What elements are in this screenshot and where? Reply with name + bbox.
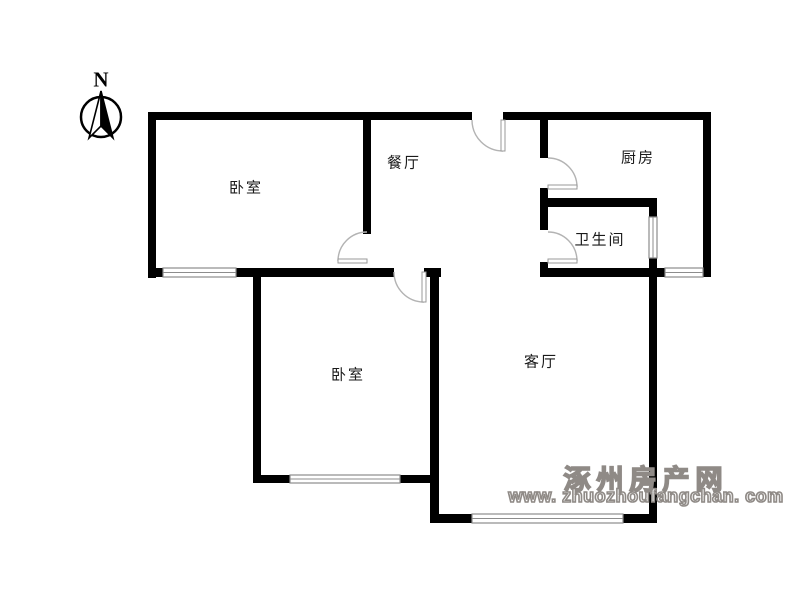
room-label-bedroom-1: 卧室 <box>229 177 263 198</box>
kitchen-door-leaf <box>548 185 577 189</box>
floorplan-canvas <box>0 0 800 600</box>
room-label-kitchen: 厨房 <box>621 147 655 168</box>
wall <box>540 112 548 158</box>
watermark-site-url: www. zhuozhoufangchan. com <box>508 486 783 507</box>
wall <box>253 475 290 483</box>
floorplan-page: N 卧室 餐厅 厨房 卫生间 卧室 客厅 涿州房产网 www. zhuozhou… <box>0 0 800 600</box>
wall <box>703 112 711 277</box>
wall <box>503 112 711 120</box>
wall <box>253 270 261 483</box>
wall <box>148 268 163 277</box>
wall <box>363 112 371 234</box>
wall <box>540 198 657 207</box>
bathroom-door-leaf <box>548 259 577 263</box>
bathroom-door-arc <box>548 232 577 261</box>
wall <box>148 112 472 120</box>
wall <box>430 270 439 523</box>
wall <box>430 514 472 523</box>
wall <box>540 188 548 230</box>
kitchen-door-arc <box>548 158 577 187</box>
wall <box>540 268 665 277</box>
entrance-door-arc <box>472 120 503 151</box>
room-label-dining-room: 餐厅 <box>387 152 421 173</box>
wall <box>148 112 156 278</box>
bedroom-1-door-leaf <box>338 259 367 263</box>
room-label-living-room: 客厅 <box>524 351 558 372</box>
entrance-door-leaf <box>501 120 505 151</box>
room-label-bedroom-2: 卧室 <box>331 364 365 385</box>
bedroom-2-door-leaf <box>422 272 426 302</box>
bedroom-1-door-arc <box>338 232 367 261</box>
room-label-bathroom: 卫生间 <box>574 229 625 250</box>
compass-north-label: N <box>93 68 108 93</box>
bedroom-2-door-arc <box>394 272 424 302</box>
